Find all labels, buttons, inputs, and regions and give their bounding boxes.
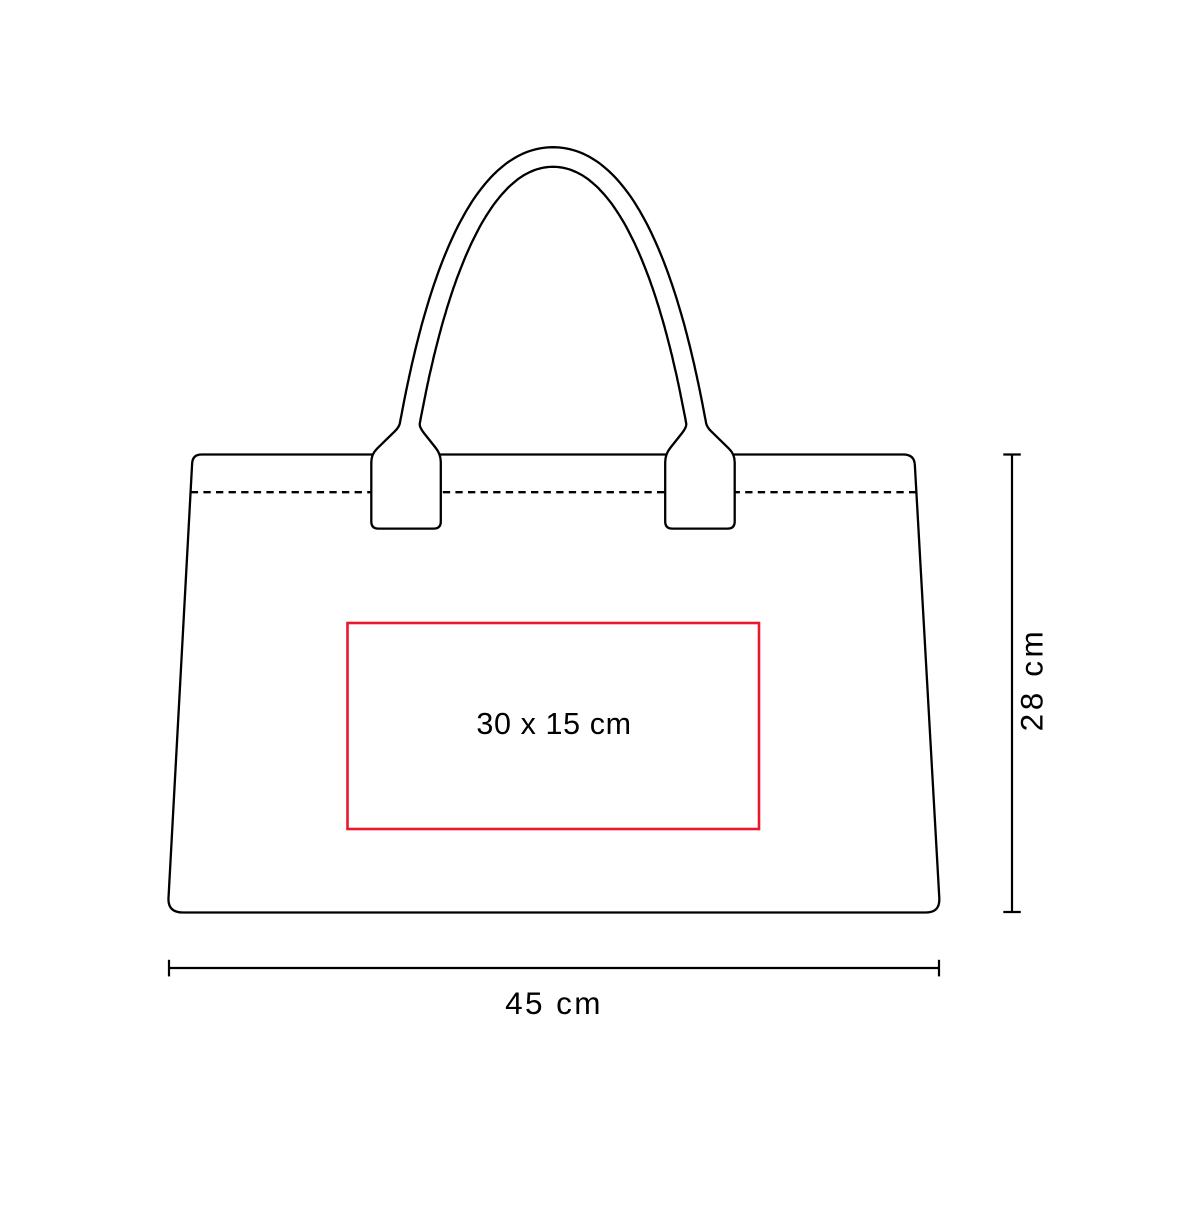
- svg-text:45 cm: 45 cm: [505, 985, 603, 1021]
- svg-text:28 cm: 28 cm: [1014, 628, 1050, 732]
- svg-text:30 x 15 cm: 30 x 15 cm: [476, 707, 631, 741]
